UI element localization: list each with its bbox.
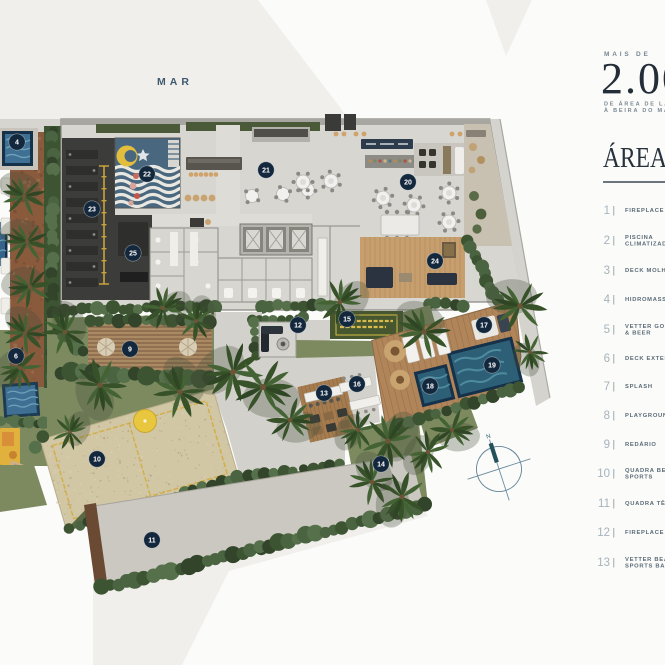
svg-text:QUADRA TÊNIS: QUADRA TÊNIS [625, 499, 665, 507]
svg-text:17: 17 [480, 323, 488, 330]
svg-text:SPLASH: SPLASH [625, 384, 653, 390]
svg-text:|: | [613, 295, 616, 306]
svg-text:|: | [613, 382, 616, 393]
svg-text:18: 18 [426, 384, 434, 391]
svg-text:PISCINA: PISCINA [625, 235, 654, 241]
svg-text:5: 5 [604, 324, 610, 336]
svg-text:13: 13 [597, 557, 610, 569]
svg-text:FIREPLACE: FIREPLACE [625, 530, 664, 536]
svg-text:4: 4 [15, 140, 19, 147]
svg-text:24: 24 [431, 259, 439, 266]
svg-text:9: 9 [128, 347, 132, 354]
svg-text:25: 25 [129, 251, 137, 258]
svg-text:2.000: 2.000 [601, 54, 665, 103]
svg-text:DECK EXTERNO: DECK EXTERNO [625, 356, 665, 362]
svg-text:16: 16 [353, 382, 361, 389]
svg-text:ÁREAS: ÁREAS [603, 141, 665, 174]
svg-text:|: | [613, 499, 616, 510]
svg-text:20: 20 [404, 180, 412, 187]
svg-text:21: 21 [262, 168, 270, 175]
svg-text:FIREPLACE: FIREPLACE [625, 208, 664, 214]
svg-text:23: 23 [88, 207, 96, 214]
svg-text:CLIMATIZADA: CLIMATIZADA [625, 242, 665, 248]
svg-text:19: 19 [488, 363, 496, 370]
svg-text:HIDROMASSAGEM: HIDROMASSAGEM [625, 297, 665, 303]
svg-text:|: | [613, 266, 616, 277]
svg-text:2: 2 [604, 235, 610, 247]
svg-text:PLAYGROUND: PLAYGROUND [625, 413, 665, 419]
svg-text:À BEIRA DO MAR: À BEIRA DO MAR [604, 107, 665, 114]
svg-text:14: 14 [377, 462, 385, 469]
svg-text:11: 11 [598, 498, 610, 510]
svg-text:6: 6 [14, 354, 18, 361]
svg-text:REDÁRIO: REDÁRIO [625, 441, 657, 448]
svg-text:1: 1 [604, 205, 610, 217]
svg-text:13: 13 [320, 391, 328, 398]
svg-text:12: 12 [294, 323, 302, 330]
svg-text:VETTER GOURMET: VETTER GOURMET [625, 324, 665, 330]
svg-text:4: 4 [604, 294, 611, 306]
svg-text:9: 9 [604, 439, 610, 451]
svg-text:22: 22 [143, 172, 151, 179]
svg-text:QUADRA BEACH: QUADRA BEACH [625, 468, 665, 474]
svg-text:|: | [613, 236, 616, 247]
svg-text:& BEER: & BEER [625, 331, 651, 337]
svg-text:15: 15 [343, 317, 351, 324]
svg-text:|: | [613, 440, 616, 451]
svg-text:SPORTS: SPORTS [625, 475, 653, 481]
svg-text:12: 12 [597, 527, 610, 539]
svg-text:|: | [613, 558, 616, 569]
svg-text:10: 10 [597, 468, 610, 480]
svg-text:|: | [613, 354, 616, 365]
svg-text:DECK MOLHADO: DECK MOLHADO [625, 268, 665, 274]
svg-text:|: | [613, 411, 616, 422]
svg-text:|: | [613, 528, 616, 539]
svg-text:SPORTS BAR: SPORTS BAR [625, 564, 665, 570]
svg-text:|: | [613, 206, 616, 217]
svg-text:7: 7 [604, 381, 610, 393]
svg-text:3: 3 [604, 265, 610, 277]
svg-text:|: | [613, 469, 616, 480]
svg-text:DE ÁREA DE LAZER: DE ÁREA DE LAZER [604, 101, 665, 108]
svg-text:|: | [613, 325, 616, 336]
svg-text:VETTER BEACH: VETTER BEACH [625, 557, 665, 563]
svg-text:8: 8 [604, 410, 610, 422]
svg-text:6: 6 [604, 353, 610, 365]
svg-text:11: 11 [148, 538, 156, 545]
svg-text:MAR: MAR [157, 76, 193, 88]
svg-text:10: 10 [93, 457, 101, 464]
